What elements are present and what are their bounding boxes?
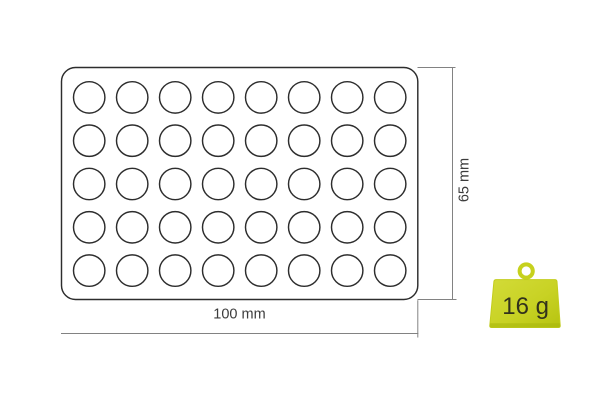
svg-text:100 mm: 100 mm xyxy=(213,306,265,322)
svg-text:16 g: 16 g xyxy=(502,293,549,320)
svg-text:65 mm: 65 mm xyxy=(456,158,472,202)
